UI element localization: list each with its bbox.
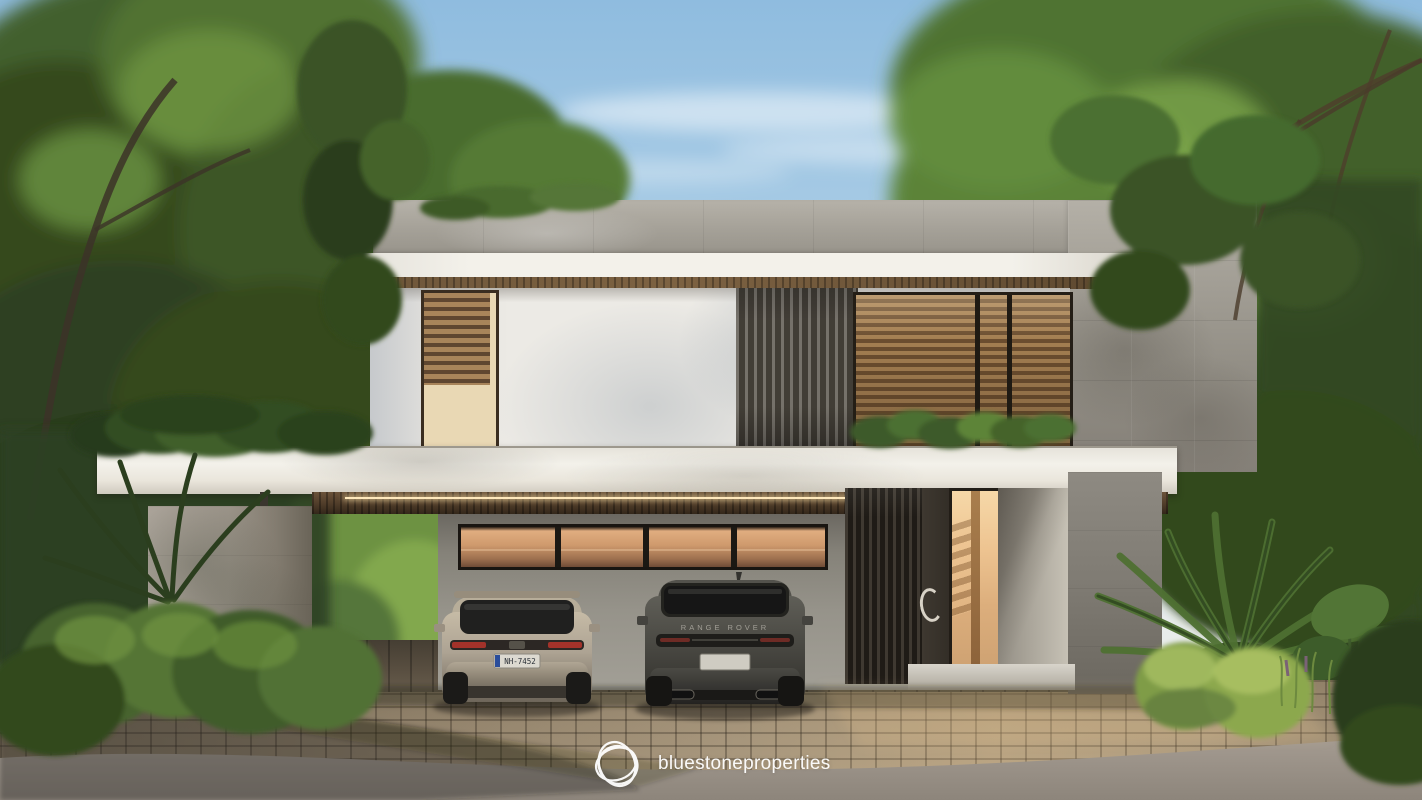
vehicle-suv-light: NH-7452 <box>433 591 601 717</box>
suv-light-wheel <box>566 672 591 704</box>
watermark: bluestoneproperties <box>590 732 890 796</box>
suv-light-wheel <box>443 672 468 704</box>
license-plate-text: NH-7452 <box>504 657 536 666</box>
overhanging-foliage-left <box>297 20 620 345</box>
suv-dark-license-plate <box>700 654 750 670</box>
bluestone-swirl-logo <box>590 735 646 793</box>
suv-light-badge <box>509 641 525 649</box>
watermark-wordmark: bluestoneproperties <box>658 753 831 775</box>
tailgate-badge-text: RANGE ROVER <box>681 623 769 632</box>
suv-dark-wheel <box>646 676 672 706</box>
foreground: NH-7452 RANGE ROVER <box>0 0 1422 800</box>
bushes-left <box>0 455 382 756</box>
balcony-ivy-planter <box>850 410 1076 449</box>
architectural-render-scene: NH-7452 RANGE ROVER <box>0 0 1422 800</box>
vehicle-suv-dark: RANGE ROVER <box>635 572 815 720</box>
overhanging-foliage-right <box>1050 60 1422 330</box>
plants-right <box>1098 515 1422 785</box>
suv-dark-wheel <box>778 676 804 706</box>
green-roof-left-canopy <box>70 395 373 457</box>
